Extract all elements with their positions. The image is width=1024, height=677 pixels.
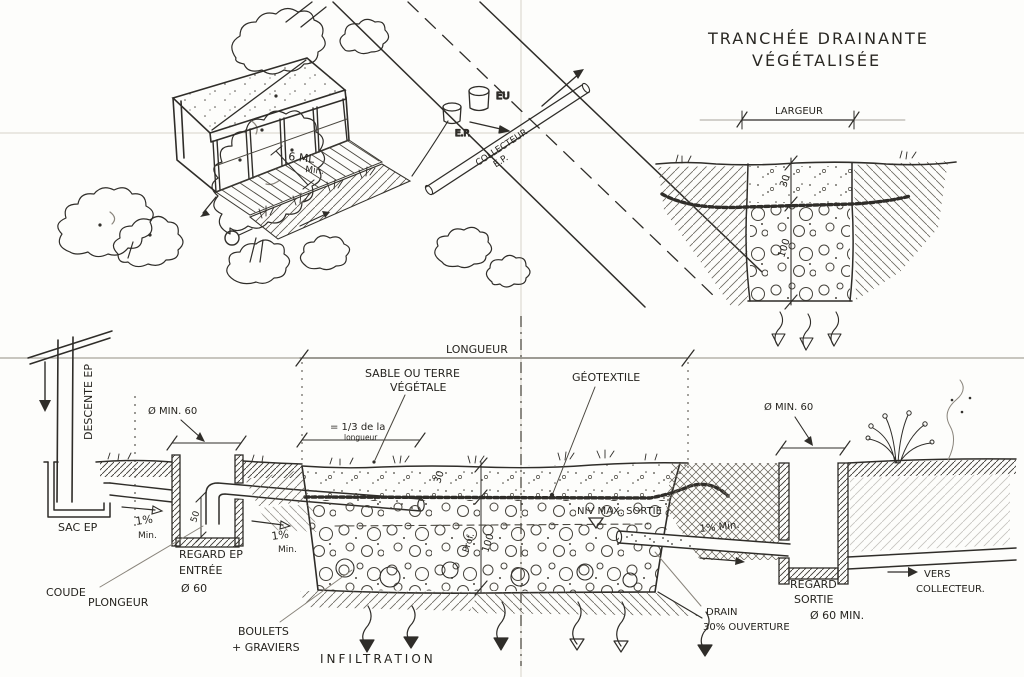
regard-sortie-label-3: Ø 60 MIN. bbox=[810, 609, 864, 622]
longueur-dimension: LONGUEUR bbox=[0, 343, 1024, 366]
detail-sand-layer bbox=[748, 166, 852, 203]
descente-ep: DESCENTE EP bbox=[28, 331, 112, 502]
slope-left-min: Min. bbox=[138, 531, 157, 541]
regard-entree: REGARD EP ENTRÉE Ø 60 bbox=[172, 455, 243, 595]
soil-left-of-trench-2 bbox=[258, 504, 317, 532]
setback-label-1: 6.ML bbox=[288, 150, 316, 166]
sable-label-1: SABLE OU TERRE bbox=[365, 367, 460, 380]
plan-pipe-to-ep bbox=[412, 121, 448, 176]
site-plan-sketch: 6.ML Min. COLLECTEUR E.P. bbox=[58, 2, 762, 307]
boulets-label-group: BOULETS + GRAVIERS bbox=[232, 570, 352, 654]
drain-label-2: 30% OUVERTURE bbox=[703, 622, 790, 633]
slope-mid-min: Min. bbox=[278, 545, 297, 555]
drainage-trench-sketch: 6.ML Min. COLLECTEUR E.P. bbox=[0, 0, 1024, 677]
sketch-title-line1: TRANCHÉE DRAINANTE bbox=[707, 29, 929, 48]
outlet-pipe: VERS COLLECTEUR. bbox=[848, 474, 1016, 595]
niv-max-label: NIV MAX. SORTIE bbox=[577, 506, 662, 517]
soil-below-trench-1 bbox=[300, 591, 478, 611]
boulets-label-1: BOULETS bbox=[238, 625, 289, 638]
inlet-pipe-left: 1% Min. bbox=[110, 483, 172, 541]
sable-label-group: SABLE OU TERRE VÉGÉTALE bbox=[365, 367, 460, 464]
largeur-dimension: LARGEUR bbox=[700, 106, 905, 129]
half-length-dimension: = 1/3 de la longueur bbox=[297, 422, 425, 447]
longueur-label: LONGUEUR bbox=[446, 343, 508, 356]
ep-label: E.P. bbox=[455, 129, 470, 139]
manholes: EU E.P. bbox=[443, 87, 510, 140]
eu-label: EU bbox=[496, 91, 510, 102]
main-cross-section: LONGUEUR DESCENTE EP SAC EP 1% Min. bbox=[0, 316, 1024, 666]
detail-gravel-layer bbox=[750, 206, 850, 301]
descente-ep-label: DESCENTE EP bbox=[82, 364, 95, 440]
coude-label-2: PLONGEUR bbox=[88, 596, 149, 609]
half-length-label-2: longueur bbox=[344, 433, 378, 442]
slope-left-pct: 1% bbox=[135, 513, 154, 528]
largeur-label: LARGEUR bbox=[775, 106, 823, 117]
diam-min-60-right-label: Ø MIN. 60 bbox=[764, 401, 813, 413]
detail-soil-right bbox=[854, 161, 948, 300]
scanned-sketch-page: 6.ML Min. COLLECTEUR E.P. bbox=[0, 0, 1024, 677]
regard-entree-label-2: ENTRÉE bbox=[179, 564, 222, 577]
diam-dimension-right: Ø MIN. 60 bbox=[764, 401, 850, 455]
diam-min-60-left-label: Ø MIN. 60 bbox=[148, 405, 197, 417]
boulets-label-2: + GRAVIERS bbox=[232, 641, 300, 654]
infiltration-label: INFILTRATION bbox=[320, 652, 436, 666]
regard-entree-label-1: REGARD EP bbox=[179, 548, 243, 561]
geotextile-label: GÉOTEXTILE bbox=[572, 371, 640, 384]
coude-label-1: COUDE bbox=[46, 586, 86, 599]
drain-label-1: DRAIN bbox=[706, 607, 738, 618]
setback-label-2: Min. bbox=[305, 165, 325, 177]
down-arrow bbox=[39, 400, 51, 412]
detail-cross-section: TRANCHÉE DRAINANTE VÉGÉTALISÉE LARGEUR bbox=[656, 29, 956, 350]
vers-label-2: COLLECTEUR. bbox=[916, 584, 985, 595]
sketch-title-line2: VÉGÉTALISÉE bbox=[752, 51, 881, 70]
sac-ep-label: SAC EP bbox=[58, 521, 98, 534]
half-length-label-1: = 1/3 de la bbox=[330, 422, 385, 433]
surface-plant bbox=[866, 380, 971, 463]
regard-entree-label-3: Ø 60 bbox=[181, 582, 207, 595]
regard-sortie-label-1: REGARD bbox=[790, 578, 837, 591]
trees bbox=[58, 8, 530, 287]
sand-layer bbox=[302, 464, 688, 500]
sable-label-2: VÉGÉTALE bbox=[390, 381, 446, 394]
detail-infiltration-arrows bbox=[772, 312, 841, 350]
vers-label-1: VERS bbox=[924, 569, 950, 580]
plan-regard-entree bbox=[225, 231, 239, 245]
diam-dimension-left: Ø MIN. 60 bbox=[148, 405, 246, 450]
detail-soil-left bbox=[658, 166, 748, 308]
road bbox=[286, 2, 762, 307]
regard-sortie-label-2: SORTIE bbox=[794, 593, 833, 606]
